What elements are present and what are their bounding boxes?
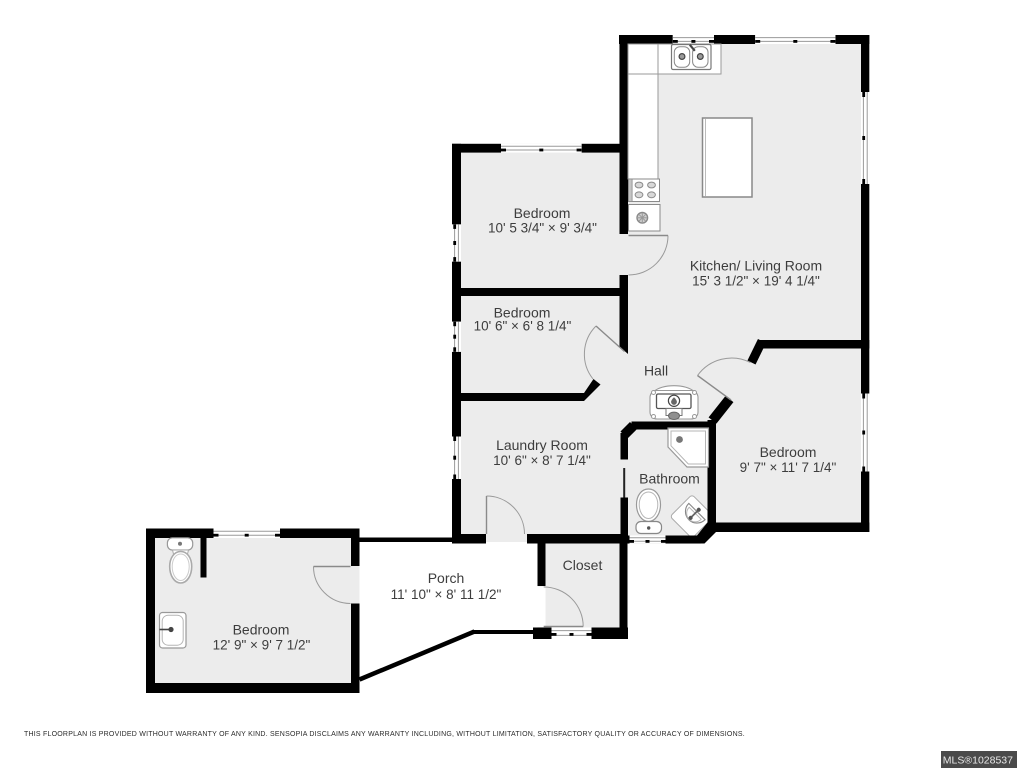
svg-text:Bathroom: Bathroom [639, 471, 700, 487]
svg-text:10' 6" × 8' 7 1/4": 10' 6" × 8' 7 1/4" [493, 453, 591, 468]
svg-text:Porch: Porch [428, 570, 465, 586]
svg-text:9' 7" × 11' 7 1/4": 9' 7" × 11' 7 1/4" [740, 460, 837, 475]
svg-text:Bedroom: Bedroom [760, 444, 817, 460]
svg-text:12' 9" × 9' 7 1/2": 12' 9" × 9' 7 1/2" [213, 638, 311, 653]
svg-text:Laundry Room: Laundry Room [496, 437, 588, 453]
svg-text:10' 5 3/4" × 9' 3/4": 10' 5 3/4" × 9' 3/4" [488, 221, 597, 236]
svg-text:MLS®1028537: MLS®1028537 [943, 755, 1013, 767]
svg-text:THIS FLOORPLAN IS PROVIDED WIT: THIS FLOORPLAN IS PROVIDED WITHOUT WARRA… [24, 731, 745, 738]
svg-text:15' 3 1/2" × 19' 4 1/4": 15' 3 1/2" × 19' 4 1/4" [692, 274, 820, 289]
svg-text:10' 6" × 6' 8 1/4": 10' 6" × 6' 8 1/4" [474, 319, 572, 334]
svg-text:Bedroom: Bedroom [514, 205, 571, 221]
svg-text:Kitchen/ Living Room: Kitchen/ Living Room [690, 258, 822, 274]
svg-text:Bedroom: Bedroom [233, 622, 290, 638]
svg-text:11' 10" × 8' 11 1/2": 11' 10" × 8' 11 1/2" [391, 587, 502, 602]
svg-text:Closet: Closet [563, 557, 603, 573]
svg-text:Hall: Hall [644, 363, 668, 379]
